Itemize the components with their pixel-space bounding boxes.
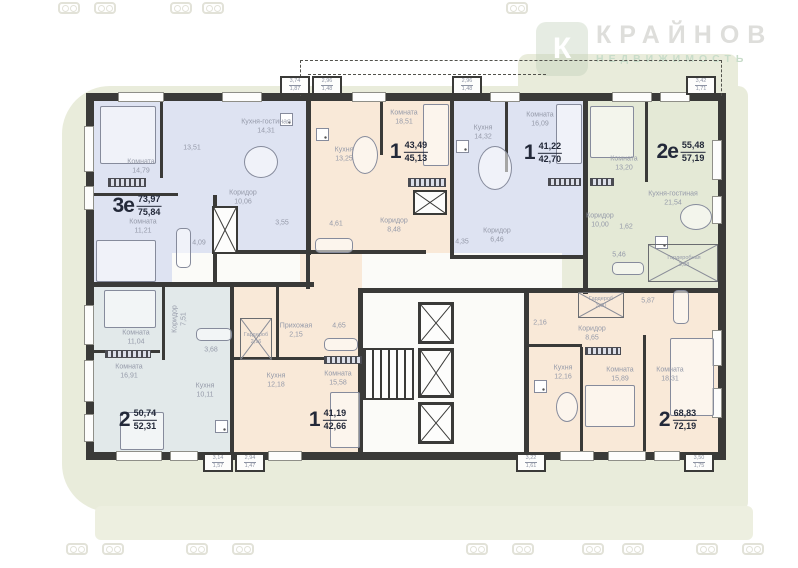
- room-label: Гардероб3,30: [589, 296, 613, 310]
- building-footprint-bg-bottom: [95, 506, 753, 540]
- neighbour-balcony-glyph: [186, 543, 208, 555]
- room-label: Коридор10,00: [586, 212, 614, 230]
- room-label: Кухня13,25: [335, 146, 354, 164]
- room-label: Кухня12,16: [554, 364, 573, 382]
- window: [84, 414, 94, 442]
- partition-wall: [528, 344, 582, 347]
- wall: [306, 93, 311, 255]
- furniture-table: [556, 392, 578, 422]
- apartment-badge: 1 43,4945,13: [390, 140, 428, 164]
- room-label: Комната16,91: [115, 363, 142, 381]
- furniture-bed: [590, 106, 634, 158]
- vent-shaft: [413, 190, 447, 215]
- room-label: Гардероб2,16: [244, 332, 268, 346]
- partition-wall: [645, 100, 648, 182]
- staircase: [362, 348, 414, 400]
- neighbour-balcony-glyph: [202, 2, 224, 14]
- room-label: Кухня-гостиная14,31: [237, 118, 295, 136]
- wall: [524, 290, 529, 454]
- furniture-bathtub: [196, 328, 232, 341]
- elevator-shaft: [418, 348, 454, 398]
- partition-wall: [643, 335, 646, 452]
- room-label: Коридор8,48: [380, 217, 408, 235]
- window: [560, 451, 594, 461]
- furniture-bed: [585, 385, 635, 427]
- room-label: Комната15,89: [606, 366, 633, 384]
- room-label: 3,55: [275, 220, 289, 229]
- furniture-table: [478, 146, 512, 190]
- wall: [358, 288, 722, 293]
- room-label: Комната11,04: [122, 329, 149, 347]
- room-label: Кухня-гостиная21,54: [648, 190, 698, 208]
- apartment-badge: 2 68,8372,19: [659, 408, 697, 432]
- furniture-table: [680, 204, 712, 230]
- wall: [86, 282, 314, 287]
- neighbour-balcony-glyph: [466, 543, 488, 555]
- window: [116, 451, 162, 461]
- window: [84, 305, 94, 345]
- elevator-shaft: [418, 402, 454, 444]
- furniture-stove: [215, 420, 228, 433]
- room-label: 2,16: [533, 320, 547, 329]
- furniture-bed: [100, 106, 156, 164]
- wall: [583, 93, 588, 294]
- wall: [450, 255, 584, 259]
- apartment-badge: 2 50,7452,31: [119, 408, 157, 432]
- furniture-stove: [456, 140, 469, 153]
- elevator-shaft: [418, 302, 454, 344]
- window: [222, 92, 262, 102]
- closet-hatch: [105, 350, 151, 358]
- neighbour-balcony-glyph: [582, 543, 604, 555]
- window: [84, 186, 94, 210]
- balcony: 2,961,48: [312, 76, 342, 95]
- balcony: 3,741,87: [280, 76, 310, 95]
- window: [118, 92, 164, 102]
- closet-hatch: [548, 178, 581, 186]
- room-label: Комната13,20: [610, 155, 637, 173]
- room-label: 1,62: [619, 224, 633, 233]
- room-label: Кухня14,32: [474, 124, 493, 142]
- room-label: 5,87: [641, 298, 655, 307]
- room-label: 5,46: [612, 252, 626, 261]
- window: [712, 196, 722, 224]
- furniture-bathtub: [324, 338, 358, 351]
- furniture-bathtub: [315, 238, 353, 253]
- closet-hatch: [108, 178, 146, 187]
- neighbour-balcony-glyph: [170, 2, 192, 14]
- neighbour-balcony-glyph: [742, 543, 764, 555]
- window: [84, 360, 94, 402]
- partition-wall: [580, 347, 583, 452]
- balcony: 3,421,71: [686, 76, 716, 95]
- room-label: Комната15,58: [324, 370, 351, 388]
- dashed-outline-inner: [308, 74, 546, 75]
- furniture-stove: [316, 128, 329, 141]
- room-label: 4,61: [329, 221, 343, 230]
- partition-wall: [162, 287, 165, 360]
- furniture-bathtub: [176, 228, 191, 268]
- room-label: Кухня12,18: [267, 372, 286, 390]
- partition-wall: [276, 287, 279, 357]
- room-label: 3,68: [204, 347, 218, 356]
- neighbour-balcony-glyph: [506, 2, 528, 14]
- furniture-table: [244, 146, 278, 178]
- room-label: Комната14,79: [127, 158, 154, 176]
- window: [170, 451, 198, 461]
- balcony: 3,141,57: [203, 453, 233, 472]
- neighbour-balcony-glyph: [66, 543, 88, 555]
- room-label: 4,35: [455, 239, 469, 248]
- wall: [230, 287, 234, 454]
- wall: [450, 93, 454, 256]
- closet-hatch: [408, 178, 446, 187]
- apartment-badge: 1 41,2242,70: [524, 141, 562, 165]
- neighbour-balcony-glyph: [232, 543, 254, 555]
- room-label: Кухня10,11: [196, 382, 215, 400]
- room-label: Коридор7,51: [171, 305, 189, 333]
- furniture-bathtub: [673, 290, 689, 324]
- wall: [306, 250, 310, 289]
- furniture-table: [352, 136, 378, 174]
- room-label: Комната18,31: [656, 366, 683, 384]
- vent-shaft: [212, 206, 238, 254]
- window: [84, 126, 94, 172]
- partition-wall: [160, 100, 163, 178]
- room-label: 4,09: [192, 240, 206, 249]
- room-label: Комната16,09: [526, 111, 553, 129]
- window: [712, 140, 722, 180]
- furniture-bed: [96, 240, 156, 282]
- balcony: 2,961,48: [452, 76, 482, 95]
- room-label: Гардеробная3,88: [667, 255, 700, 269]
- room-label: Коридор10,06: [229, 189, 257, 207]
- neighbour-balcony-glyph: [512, 543, 534, 555]
- furniture-bathtub: [612, 262, 644, 275]
- neighbour-balcony-glyph: [94, 2, 116, 14]
- apartment-badge: 1 41,1942,66: [309, 408, 347, 432]
- room-label: Прихожая2,15: [280, 322, 312, 340]
- room-label: Коридор6,46: [483, 227, 511, 245]
- apartment-badge: 3е 73,9775,84: [113, 194, 162, 218]
- neighbour-balcony-glyph: [102, 543, 124, 555]
- floorplan-image: К КРАЙНОВ НЕДВИЖИМОСТЬ: [0, 0, 798, 568]
- balcony: 3,221,61: [516, 453, 546, 472]
- furniture-stove: [534, 380, 547, 393]
- closet-hatch: [585, 347, 621, 355]
- neighbour-balcony-glyph: [696, 543, 718, 555]
- furniture-bed: [104, 290, 156, 328]
- balcony: 2,941,47: [235, 453, 265, 472]
- balcony: 3,501,75: [684, 453, 714, 472]
- closet-hatch: [590, 178, 614, 186]
- room-label: Коридор8,65: [578, 325, 606, 343]
- room-label: Комната11,21: [129, 218, 156, 236]
- room-label: Комната18,51: [390, 109, 417, 127]
- room-label: 13,51: [183, 145, 201, 154]
- apartment-badge: 2е 55,4857,19: [657, 140, 706, 164]
- neighbour-balcony-glyph: [622, 543, 644, 555]
- window: [608, 451, 646, 461]
- dashed-outline: [300, 60, 722, 96]
- neighbour-balcony-glyph: [58, 2, 80, 14]
- window: [268, 451, 302, 461]
- partition-wall: [380, 100, 383, 155]
- window: [654, 451, 680, 461]
- watermark-brand: КРАЙНОВ: [596, 22, 773, 50]
- room-label: 4,65: [332, 323, 346, 332]
